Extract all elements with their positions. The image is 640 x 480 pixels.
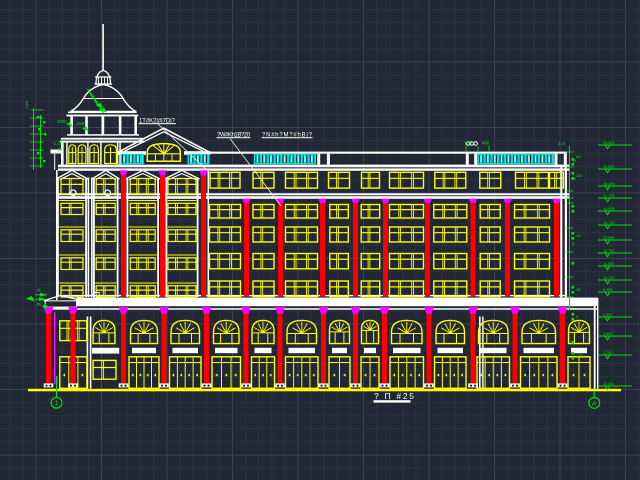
svg-text:1.2B: 1.2B (54, 141, 63, 146)
svg-text:17.700: 17.700 (603, 194, 615, 198)
svg-text:2B: 2B (576, 234, 581, 238)
svg-text:1.750: 1.750 (603, 351, 613, 355)
svg-text:18.300: 18.300 (603, 182, 615, 186)
svg-text:2400: 2400 (57, 119, 68, 124)
svg-text:12.750: 12.750 (603, 249, 615, 253)
svg-text:13.800: 13.800 (603, 236, 615, 240)
svg-text:17B: 17B (576, 354, 583, 358)
svg-text:23.400: 23.400 (603, 141, 615, 145)
svg-text:A: A (592, 400, 597, 407)
svg-text:4.500: 4.500 (603, 332, 613, 336)
svg-text:2400: 2400 (25, 101, 29, 109)
svg-text:16.500: 16.500 (603, 207, 615, 211)
svg-text:19.800: 19.800 (603, 165, 615, 169)
svg-text:11.500: 11.500 (603, 262, 614, 266)
svg-text:400: 400 (482, 141, 490, 146)
svg-text:328: 328 (77, 121, 85, 126)
svg-text:14.700: 14.700 (603, 221, 615, 225)
svg-text:6B: 6B (576, 155, 581, 159)
svg-text:8: 8 (576, 315, 578, 319)
svg-text:8.700: 8.700 (603, 288, 613, 292)
svg-text:40: 40 (57, 147, 62, 152)
svg-text:-0.150: -0.150 (603, 382, 614, 386)
svg-text:3=0: 3=0 (558, 141, 566, 146)
svg-text:240: 240 (576, 174, 582, 178)
svg-text:b0: b0 (37, 302, 42, 307)
svg-text:1: 1 (55, 400, 59, 407)
svg-text:1000: 1000 (464, 141, 474, 146)
svg-text:3B: 3B (576, 288, 581, 292)
svg-text:N: N (38, 288, 41, 293)
svg-text:10.100: 10.100 (603, 276, 615, 280)
svg-text:4.300: 4.300 (603, 313, 613, 317)
